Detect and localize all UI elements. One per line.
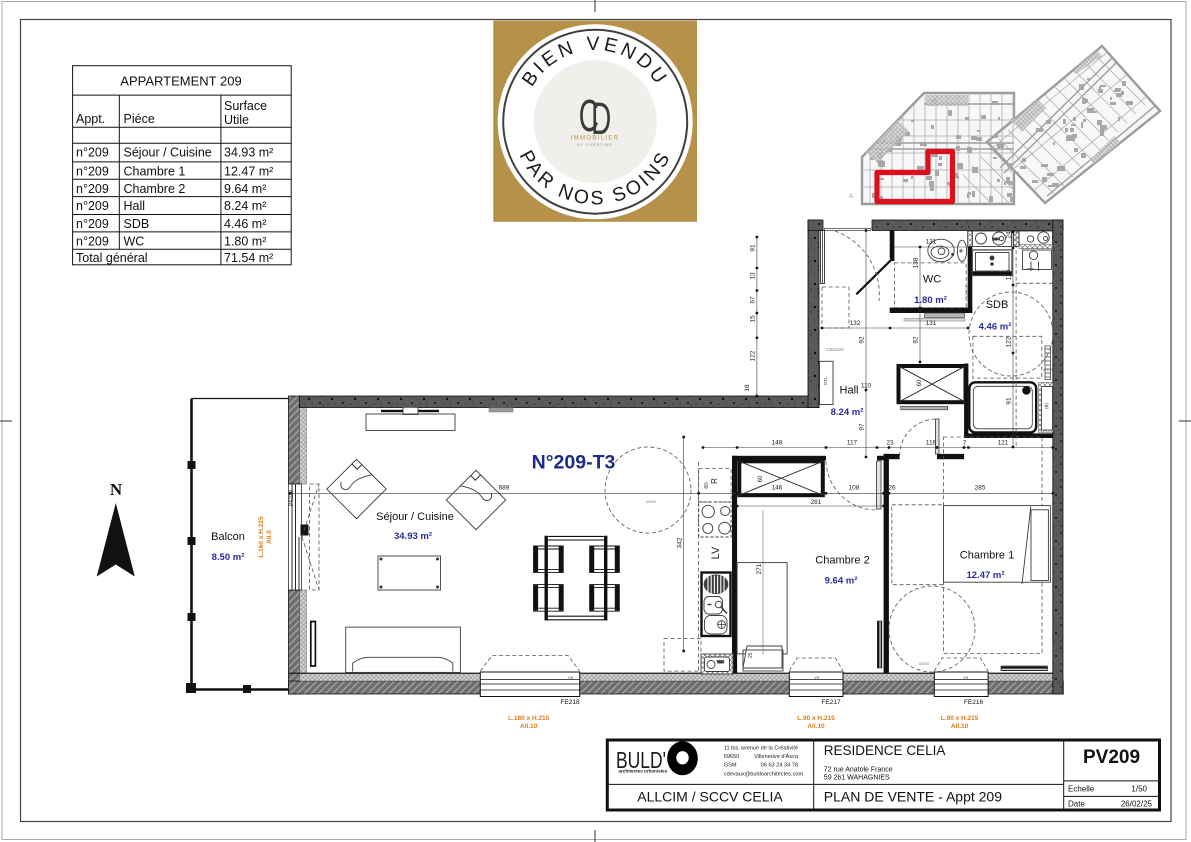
svg-text:281: 281 xyxy=(811,499,822,506)
svg-text:67: 67 xyxy=(750,296,757,304)
svg-text:18: 18 xyxy=(744,384,751,392)
svg-text:117: 117 xyxy=(847,440,858,447)
svg-text:Appt.: Appt. xyxy=(76,112,105,126)
svg-text:FE218: FE218 xyxy=(560,699,580,706)
svg-text:91: 91 xyxy=(1006,397,1013,405)
svg-text:PLAN DE VENTE - Appt 209: PLAN DE VENTE - Appt 209 xyxy=(824,789,1002,805)
svg-text:Echelle: Echelle xyxy=(1068,785,1095,794)
svg-text:116: 116 xyxy=(926,440,937,447)
svg-text:146: 146 xyxy=(772,485,783,492)
svg-text:271: 271 xyxy=(756,563,763,574)
svg-text:110: 110 xyxy=(861,383,872,390)
svg-text:Total général: Total général xyxy=(76,251,148,265)
svg-text:71.54 m²: 71.54 m² xyxy=(224,251,273,265)
svg-text:Piéce: Piéce xyxy=(124,112,155,126)
svg-text:8.50 m²: 8.50 m² xyxy=(212,552,245,563)
svg-text:Ø150: Ø150 xyxy=(1043,367,1054,372)
svg-text:SDB: SDB xyxy=(124,217,150,231)
svg-text:VR: VR xyxy=(568,675,574,680)
svg-text:60-: 60- xyxy=(704,481,710,489)
svg-text:131: 131 xyxy=(926,320,937,327)
svg-text:IMMOBILIER: IMMOBILIER xyxy=(571,135,619,142)
svg-text:91: 91 xyxy=(750,244,757,252)
svg-text:ALLCIM / SCCV CELIA: ALLCIM / SCCV CELIA xyxy=(637,789,783,805)
svg-text:121: 121 xyxy=(998,440,1009,447)
svg-text:689: 689 xyxy=(499,485,510,492)
svg-text:34.93 m²: 34.93 m² xyxy=(394,531,432,542)
svg-text:26/02/25: 26/02/25 xyxy=(1121,800,1153,809)
svg-text:FE216: FE216 xyxy=(964,699,984,706)
svg-text:Chambre 2: Chambre 2 xyxy=(815,555,869,567)
svg-text:138: 138 xyxy=(913,257,920,268)
svg-text:cdevaux@buldoarchitectes.com: cdevaux@buldoarchitectes.com xyxy=(724,772,804,778)
svg-text:1.80 m²: 1.80 m² xyxy=(224,234,266,248)
svg-text:13: 13 xyxy=(750,272,757,280)
svg-text:8.24 m²: 8.24 m² xyxy=(224,199,266,213)
svg-text:9.64 m²: 9.64 m² xyxy=(224,182,266,196)
svg-text:108: 108 xyxy=(849,485,860,492)
svg-text:1/50: 1/50 xyxy=(1131,785,1147,794)
svg-text:26: 26 xyxy=(888,485,896,492)
svg-text:L.160 x H.225: L.160 x H.225 xyxy=(258,516,265,558)
svg-text:15: 15 xyxy=(750,315,757,323)
svg-text:N: N xyxy=(110,480,123,499)
svg-text:92: 92 xyxy=(913,336,920,344)
svg-text:WC: WC xyxy=(923,274,941,286)
svg-text:n°209: n°209 xyxy=(76,182,109,196)
svg-text:All.10: All.10 xyxy=(807,723,825,730)
svg-text:Balcon: Balcon xyxy=(211,531,245,543)
svg-text:LV: LV xyxy=(710,546,722,559)
svg-text:n°209: n°209 xyxy=(76,146,109,160)
svg-text:24: 24 xyxy=(1006,231,1013,239)
svg-text:1.80 m²: 1.80 m² xyxy=(914,295,947,306)
svg-text:Hall: Hall xyxy=(124,199,146,213)
svg-text:122: 122 xyxy=(1006,336,1013,347)
svg-text:A: A xyxy=(849,194,853,200)
svg-text:avenue de la Créativité: avenue de la Créativité xyxy=(741,746,798,752)
svg-text:23: 23 xyxy=(886,440,894,447)
svg-text:Utile: Utile xyxy=(224,113,249,127)
svg-text:Séjour / Cuisine: Séjour / Cuisine xyxy=(124,146,212,160)
svg-text:342: 342 xyxy=(677,537,684,548)
svg-text:GSM: GSM xyxy=(724,763,737,769)
svg-text:Surface: Surface xyxy=(224,99,267,113)
svg-text:4.46 m²: 4.46 m² xyxy=(224,217,266,231)
svg-text:Chambre 2: Chambre 2 xyxy=(124,182,186,196)
svg-text:Date: Date xyxy=(1068,800,1085,809)
svg-text:60: 60 xyxy=(917,379,923,386)
svg-text:VR: VR xyxy=(814,675,820,680)
svg-text:92: 92 xyxy=(859,336,866,344)
svg-text:PF219: PF219 xyxy=(289,490,295,506)
svg-text:7: 7 xyxy=(963,440,967,447)
svg-text:Séjour / Cuisine: Séjour / Cuisine xyxy=(376,511,454,523)
svg-text:FE217: FE217 xyxy=(821,699,841,706)
svg-text:132: 132 xyxy=(850,320,861,327)
svg-text:60: 60 xyxy=(758,475,764,482)
svg-text:Ø150: Ø150 xyxy=(646,499,657,504)
svg-text:All.10: All.10 xyxy=(951,723,969,730)
svg-text:Chambre 1: Chambre 1 xyxy=(124,164,186,178)
svg-text:59 261 WAHAGNIES: 59 261 WAHAGNIES xyxy=(824,775,890,782)
svg-text:RESIDENCE CELIA: RESIDENCE CELIA xyxy=(824,743,946,758)
svg-text:12.47 m²: 12.47 m² xyxy=(224,164,273,178)
svg-text:130x220: 130x220 xyxy=(826,347,844,352)
svg-text:PV209: PV209 xyxy=(1083,747,1140,768)
svg-text:11 bis.: 11 bis. xyxy=(724,746,741,752)
svg-text:n°209: n°209 xyxy=(76,234,109,248)
svg-text:WC: WC xyxy=(124,234,145,248)
svg-text:SDB: SDB xyxy=(986,299,1009,311)
svg-text:n°209: n°209 xyxy=(76,199,109,213)
svg-text:110: 110 xyxy=(1006,269,1013,280)
svg-text:L.90 x H.215: L.90 x H.215 xyxy=(941,715,979,722)
svg-text:L.90 x H.215: L.90 x H.215 xyxy=(797,715,835,722)
svg-text:VR: VR xyxy=(963,675,969,680)
svg-text:n°209: n°209 xyxy=(76,217,109,231)
svg-text:All.10: All.10 xyxy=(520,723,538,730)
svg-text:06 63 24 34 78: 06 63 24 34 78 xyxy=(761,763,798,769)
svg-text:97: 97 xyxy=(859,423,866,431)
svg-text:APPARTEMENT 209: APPARTEMENT 209 xyxy=(120,74,241,89)
svg-text:285: 285 xyxy=(975,485,986,492)
svg-text:25: 25 xyxy=(748,652,754,658)
svg-text:9.64 m²: 9.64 m² xyxy=(825,576,858,587)
svg-text:architectes urbanistes: architectes urbanistes xyxy=(619,769,668,774)
svg-text:8.24 m²: 8.24 m² xyxy=(831,407,864,418)
svg-text:L.180 x H.215: L.180 x H.215 xyxy=(508,715,550,722)
svg-text:All.0: All.0 xyxy=(266,530,273,544)
svg-text:VMC: VMC xyxy=(717,660,725,664)
svg-text:OTL: OTL xyxy=(823,376,828,385)
svg-text:R: R xyxy=(710,478,719,484)
svg-text:122: 122 xyxy=(750,350,757,361)
svg-text:B0x130: B0x130 xyxy=(965,286,969,298)
svg-text:Hall: Hall xyxy=(840,385,859,397)
svg-text:72 rue Anatole France: 72 rue Anatole France xyxy=(824,767,893,774)
svg-text:VMC: VMC xyxy=(993,237,1001,241)
svg-text:Chambre 1: Chambre 1 xyxy=(960,550,1014,562)
svg-text:Ø150: Ø150 xyxy=(919,661,930,666)
svg-text:148: 148 xyxy=(772,440,783,447)
svg-text:BY OVERTIME: BY OVERTIME xyxy=(577,143,612,147)
svg-text:34.93 m²: 34.93 m² xyxy=(224,146,273,160)
svg-text:N°209-T3: N°209-T3 xyxy=(532,452,616,474)
svg-text:4.46 m²: 4.46 m² xyxy=(979,322,1012,333)
svg-text:n°209: n°209 xyxy=(76,164,109,178)
svg-text:59650: 59650 xyxy=(724,754,740,760)
svg-text:(B): (B) xyxy=(1044,403,1049,410)
svg-text:Villeneuve d'Ascq: Villeneuve d'Ascq xyxy=(754,754,798,760)
svg-text:131: 131 xyxy=(926,239,937,246)
svg-text:12.47 m²: 12.47 m² xyxy=(966,570,1004,581)
